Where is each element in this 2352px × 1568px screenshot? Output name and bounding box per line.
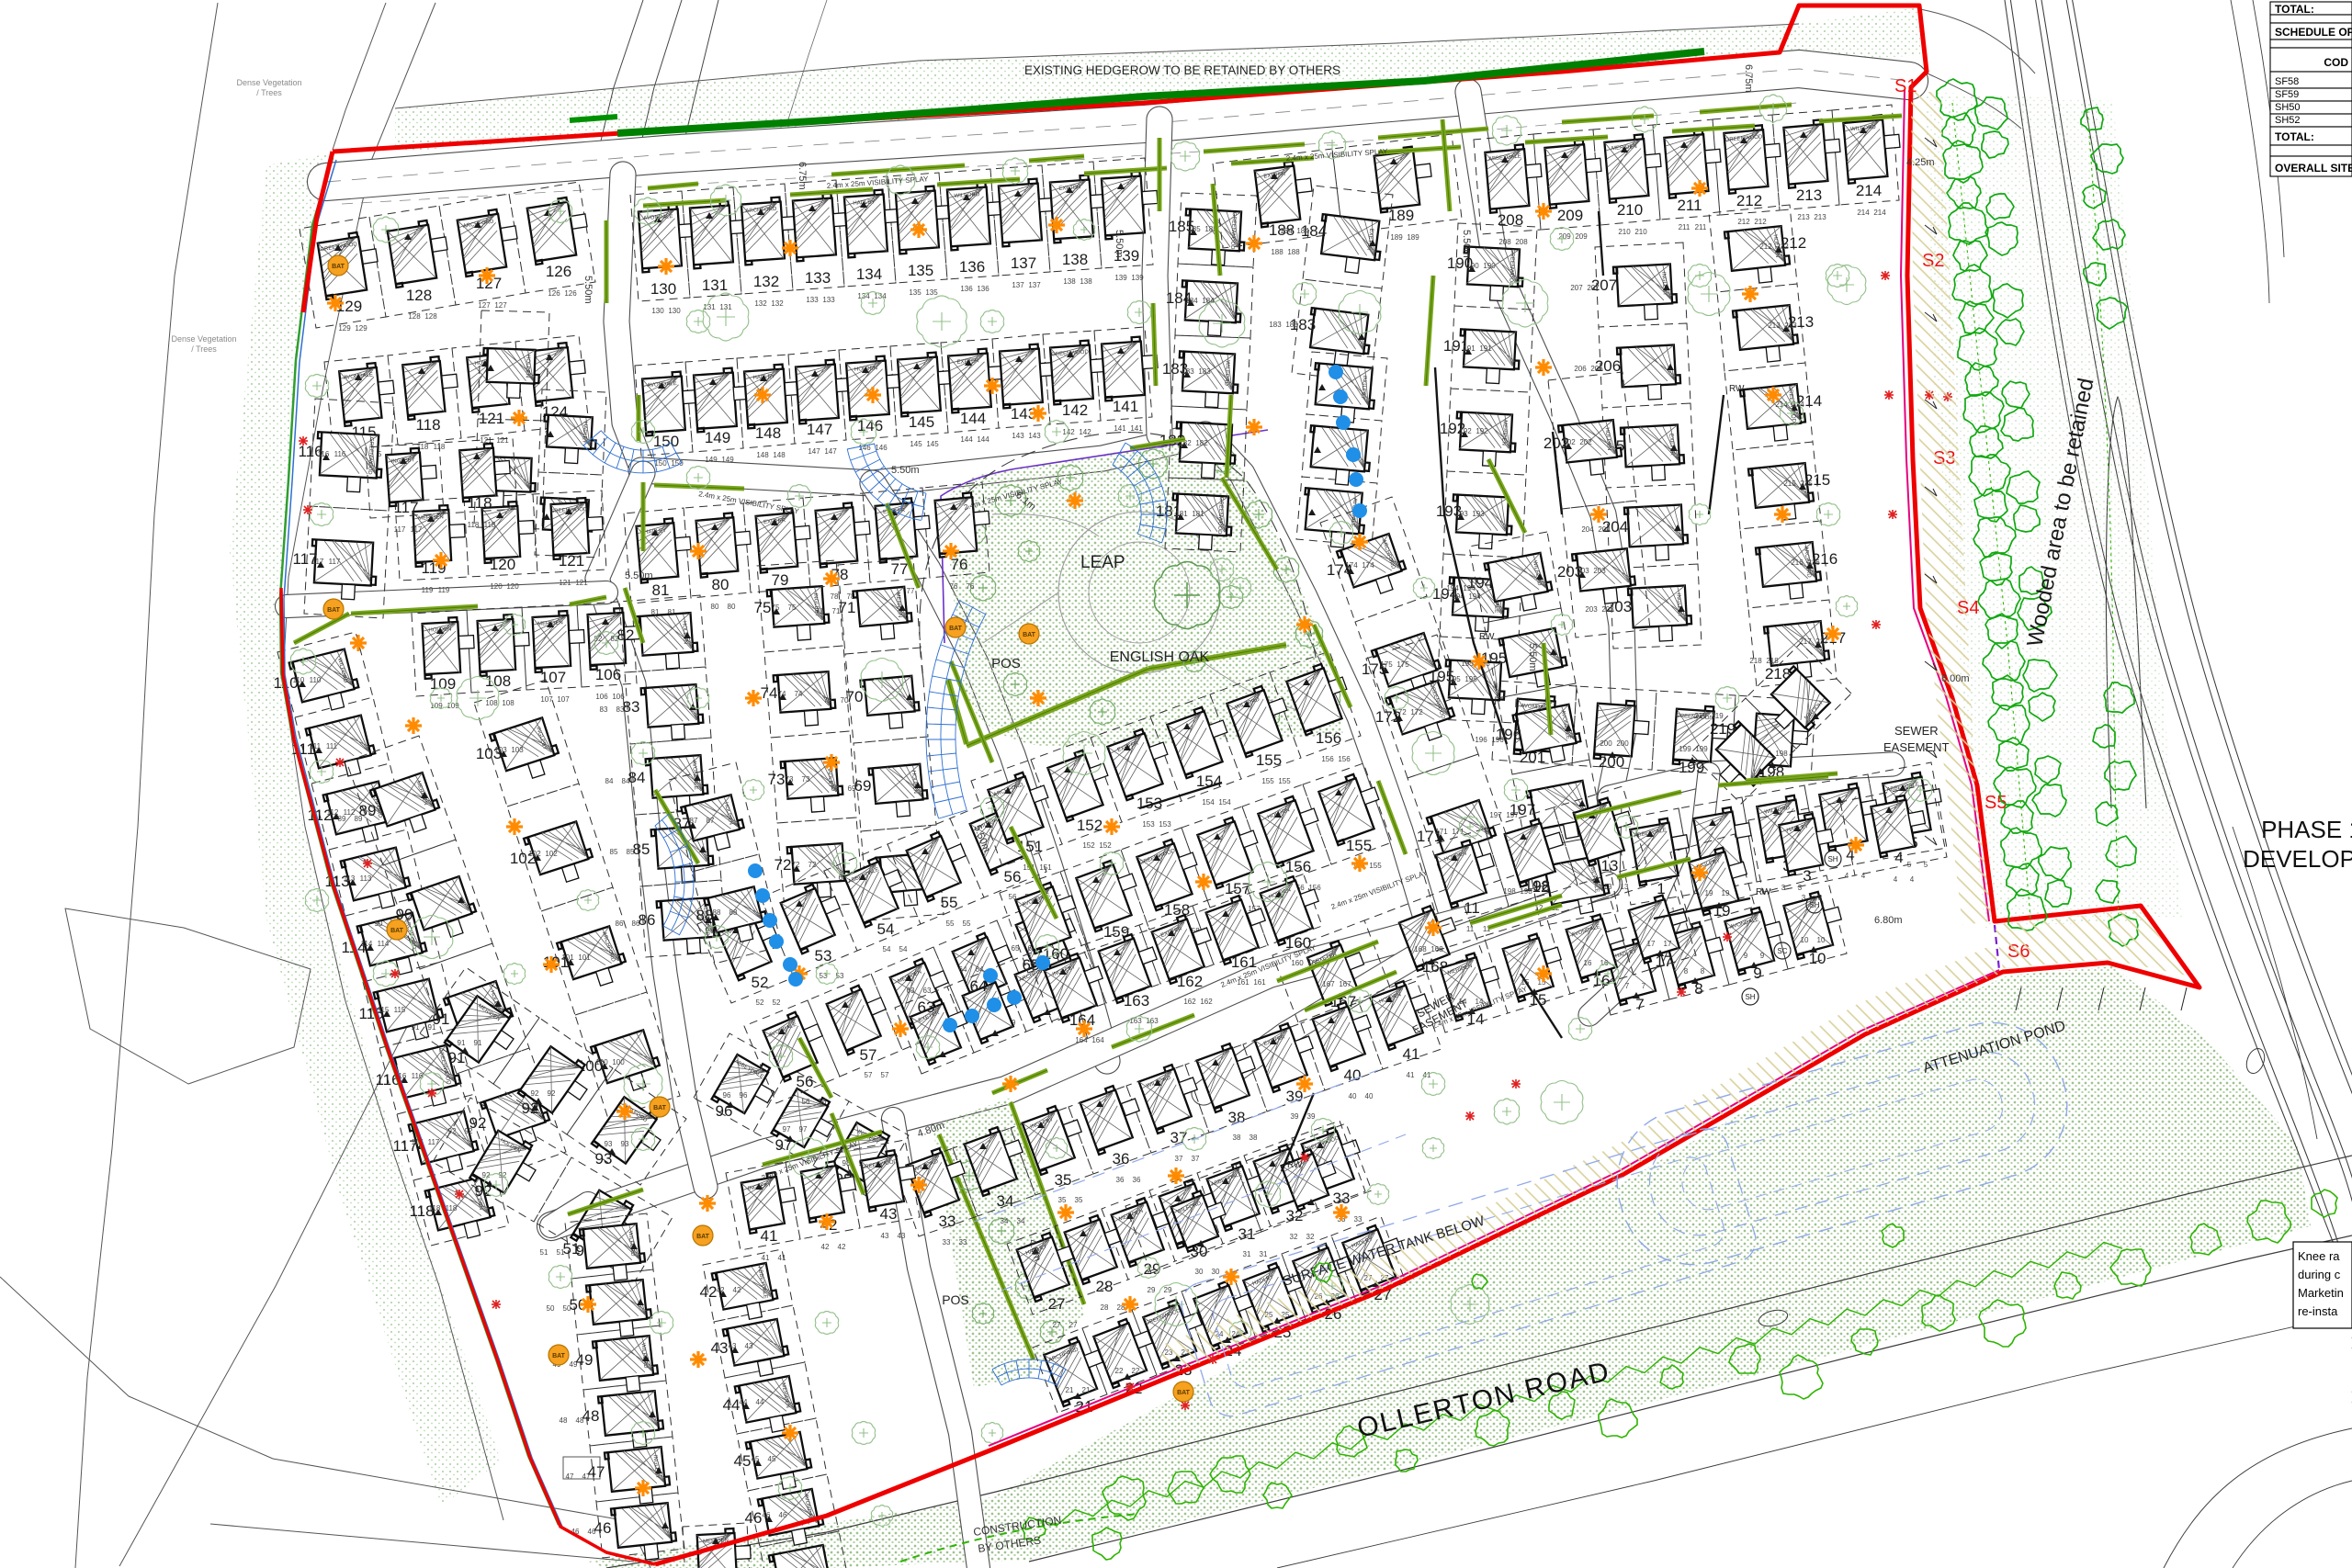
svg-text:183: 183: [1198, 367, 1211, 376]
svg-text:193: 193: [1455, 510, 1468, 518]
svg-text:46: 46: [745, 1509, 763, 1527]
svg-text:70: 70: [841, 696, 849, 705]
svg-text:40: 40: [1365, 1092, 1374, 1100]
svg-text:208: 208: [1498, 238, 1511, 246]
svg-text:203: 203: [1601, 605, 1614, 614]
svg-text:200: 200: [1599, 753, 1624, 771]
svg-text:75: 75: [788, 604, 797, 612]
svg-text:119: 119: [438, 586, 450, 594]
svg-text:5.50m: 5.50m: [1527, 643, 1538, 671]
svg-text:POS: POS: [942, 1292, 969, 1307]
svg-text:70: 70: [824, 696, 832, 705]
svg-text:SF59: SF59: [2275, 89, 2299, 100]
svg-text:171: 171: [1435, 828, 1448, 836]
svg-text:218: 218: [1765, 665, 1791, 682]
svg-text:40: 40: [1344, 1066, 1362, 1084]
svg-text:49: 49: [570, 1360, 578, 1369]
svg-text:54: 54: [899, 945, 908, 953]
svg-text:115: 115: [378, 1006, 390, 1014]
svg-text:41: 41: [778, 1254, 786, 1262]
svg-text:156: 156: [1316, 729, 1341, 747]
svg-text:64: 64: [959, 965, 967, 974]
svg-text:48: 48: [560, 1416, 568, 1425]
svg-text:DEVELOPME: DEVELOPME: [2243, 845, 2352, 873]
svg-text:212: 212: [1736, 192, 1762, 209]
svg-text:35: 35: [1075, 1196, 1083, 1204]
svg-text:31: 31: [1243, 1250, 1251, 1258]
svg-text:197: 197: [1506, 811, 1519, 819]
svg-text:57: 57: [865, 1071, 873, 1079]
svg-text:213: 213: [1768, 321, 1781, 330]
svg-text:145: 145: [910, 440, 922, 448]
svg-text:55: 55: [963, 919, 971, 928]
svg-text:7: 7: [1642, 982, 1646, 990]
svg-text:4: 4: [1894, 875, 1898, 884]
svg-text:56: 56: [797, 1073, 814, 1090]
svg-text:213: 213: [1796, 186, 1822, 204]
svg-text:103: 103: [511, 746, 524, 754]
svg-text:143: 143: [1028, 432, 1041, 440]
svg-text:51: 51: [557, 1248, 565, 1257]
svg-text:31: 31: [1238, 1225, 1256, 1243]
svg-text:107: 107: [557, 695, 570, 704]
svg-text:133: 133: [805, 269, 831, 287]
svg-text:203: 203: [1593, 567, 1606, 575]
svg-text:156: 156: [1321, 755, 1334, 763]
svg-text:82: 82: [617, 626, 635, 644]
svg-text:146: 146: [875, 444, 888, 452]
svg-text:117: 117: [329, 558, 341, 566]
svg-text:213: 213: [1784, 321, 1797, 330]
svg-text:212: 212: [1776, 243, 1789, 251]
svg-text:129: 129: [338, 324, 351, 333]
svg-text:215: 215: [1783, 479, 1796, 488]
svg-text:28: 28: [1096, 1278, 1114, 1295]
svg-text:5.50m: 5.50m: [891, 465, 920, 476]
svg-text:100: 100: [595, 1058, 608, 1066]
svg-text:204: 204: [1598, 525, 1611, 534]
svg-text:155: 155: [1261, 777, 1274, 785]
svg-text:128: 128: [408, 312, 421, 321]
svg-text:84: 84: [622, 777, 630, 785]
svg-text:48: 48: [576, 1416, 584, 1425]
svg-text:209: 209: [1575, 232, 1588, 241]
svg-text:41: 41: [1403, 1045, 1420, 1063]
svg-text:39: 39: [1307, 1112, 1316, 1121]
svg-text:72: 72: [792, 861, 800, 869]
svg-text:91: 91: [474, 1039, 482, 1047]
svg-text:203: 203: [1577, 567, 1589, 575]
svg-text:138: 138: [1080, 277, 1092, 286]
svg-text:214: 214: [1873, 209, 1886, 217]
svg-text:89: 89: [338, 815, 346, 823]
svg-text:91: 91: [428, 1023, 436, 1032]
svg-text:108: 108: [502, 699, 514, 707]
svg-text:SH: SH: [1745, 993, 1755, 1001]
svg-text:9: 9: [1744, 952, 1748, 960]
svg-text:BAT: BAT: [1023, 632, 1036, 638]
svg-text:130: 130: [651, 307, 664, 315]
svg-text:148: 148: [756, 451, 769, 459]
svg-text:12: 12: [1532, 878, 1550, 896]
svg-text:89: 89: [355, 815, 363, 823]
svg-text:217: 217: [1799, 637, 1812, 646]
svg-text:SH: SH: [1809, 901, 1819, 909]
svg-text:200: 200: [1600, 739, 1612, 748]
svg-text:57: 57: [881, 1071, 889, 1079]
svg-text:121: 121: [575, 579, 588, 587]
svg-text:81: 81: [652, 581, 670, 599]
svg-text:126: 126: [548, 289, 560, 298]
svg-text:120: 120: [490, 582, 503, 591]
svg-text:188: 188: [1287, 248, 1300, 256]
svg-text:55: 55: [941, 894, 958, 911]
svg-text:189: 189: [1407, 233, 1419, 242]
svg-text:34: 34: [1001, 1217, 1009, 1225]
svg-text:13: 13: [1604, 883, 1612, 891]
svg-text:83: 83: [600, 705, 608, 714]
svg-text:162: 162: [1177, 973, 1203, 990]
svg-text:54: 54: [877, 920, 895, 938]
svg-text:127: 127: [494, 301, 507, 310]
svg-text:85: 85: [627, 848, 635, 856]
svg-text:69: 69: [854, 777, 872, 795]
svg-text:21: 21: [1082, 1386, 1091, 1394]
svg-text:29: 29: [1148, 1286, 1156, 1294]
svg-text:76: 76: [950, 582, 958, 591]
svg-text:219: 219: [1694, 712, 1707, 720]
svg-text:135: 135: [925, 288, 938, 297]
svg-text:163: 163: [1146, 1017, 1159, 1025]
svg-text:214: 214: [1856, 182, 1882, 199]
svg-text:37: 37: [1175, 1155, 1183, 1163]
svg-text:50: 50: [547, 1304, 555, 1313]
svg-text:56: 56: [1004, 868, 1022, 886]
svg-text:194: 194: [1463, 584, 1476, 592]
svg-text:56: 56: [819, 1098, 827, 1106]
svg-text:147: 147: [807, 421, 832, 438]
svg-text:55: 55: [946, 919, 955, 928]
svg-text:Dense Vegetation: Dense Vegetation: [236, 78, 301, 87]
svg-text:63: 63: [907, 987, 915, 995]
svg-text:190: 190: [1483, 262, 1496, 270]
svg-text:75: 75: [772, 604, 780, 612]
svg-text:142: 142: [1062, 428, 1075, 436]
svg-text:92: 92: [522, 1100, 539, 1117]
svg-text:7: 7: [1625, 982, 1630, 990]
svg-text:83: 83: [623, 698, 640, 716]
svg-text:73: 73: [802, 775, 810, 784]
svg-text:91: 91: [448, 1049, 466, 1066]
svg-text:3: 3: [1802, 894, 1806, 902]
svg-text:38: 38: [1249, 1134, 1258, 1142]
svg-text:13: 13: [1621, 883, 1629, 891]
svg-text:SH: SH: [1827, 855, 1837, 863]
svg-text:135: 135: [908, 262, 933, 279]
svg-text:137: 137: [1028, 281, 1041, 289]
svg-text:196: 196: [1475, 736, 1487, 744]
svg-text:108: 108: [485, 672, 511, 690]
svg-text:69: 69: [831, 784, 840, 793]
svg-text:86: 86: [616, 919, 624, 928]
svg-text:44: 44: [740, 1398, 748, 1406]
svg-text:133: 133: [806, 296, 819, 304]
svg-text:43: 43: [880, 1205, 898, 1223]
svg-text:211: 211: [1679, 223, 1690, 231]
svg-text:181: 181: [1192, 510, 1204, 518]
svg-text:212: 212: [1754, 218, 1767, 226]
svg-text:43: 43: [745, 1342, 753, 1350]
svg-text:79: 79: [772, 571, 789, 589]
svg-text:96: 96: [716, 1102, 733, 1120]
svg-text:195: 195: [1464, 675, 1477, 683]
svg-text:118: 118: [429, 1204, 441, 1213]
svg-text:141: 141: [1130, 424, 1143, 433]
svg-text:117: 117: [393, 499, 418, 516]
svg-text:161: 161: [1253, 978, 1266, 987]
svg-text:43: 43: [729, 1342, 737, 1350]
svg-text:207: 207: [1570, 284, 1583, 292]
svg-text:86: 86: [639, 911, 656, 929]
svg-text:135: 135: [909, 288, 922, 297]
svg-text:164: 164: [1075, 1036, 1088, 1044]
svg-text:172: 172: [1410, 708, 1423, 716]
svg-text:73: 73: [786, 775, 794, 784]
svg-text:74: 74: [778, 690, 786, 698]
svg-text:SC: SC: [1777, 947, 1787, 955]
svg-text:22: 22: [1132, 1367, 1140, 1375]
svg-text:189: 189: [1390, 233, 1403, 242]
svg-text:202: 202: [1579, 438, 1592, 446]
svg-text:BAT: BAT: [653, 1105, 667, 1111]
svg-text:115: 115: [394, 1006, 406, 1014]
svg-text:117: 117: [312, 558, 324, 566]
svg-text:133: 133: [822, 296, 835, 304]
svg-text:52: 52: [756, 998, 764, 1007]
svg-text:189: 189: [1388, 207, 1414, 224]
svg-text:52: 52: [773, 998, 781, 1007]
svg-text:31: 31: [1260, 1250, 1268, 1258]
svg-text:163: 163: [1124, 992, 1149, 1010]
svg-text:185: 185: [1188, 225, 1201, 233]
svg-text:134: 134: [856, 265, 882, 283]
svg-text:214: 214: [1792, 400, 1804, 409]
svg-text:71: 71: [839, 599, 856, 616]
svg-text:92: 92: [475, 1182, 492, 1200]
svg-text:141: 141: [1114, 424, 1126, 433]
svg-text:45: 45: [752, 1455, 760, 1463]
svg-text:192: 192: [1476, 427, 1488, 435]
svg-text:154: 154: [1202, 798, 1215, 807]
svg-text:SH50: SH50: [2275, 102, 2301, 113]
svg-text:113: 113: [344, 874, 356, 883]
svg-text:36: 36: [1133, 1176, 1141, 1184]
svg-text:121: 121: [559, 552, 584, 570]
svg-text:28: 28: [1101, 1303, 1109, 1312]
svg-text:144: 144: [977, 435, 989, 444]
svg-text:213: 213: [1814, 213, 1826, 221]
svg-text:129: 129: [355, 324, 367, 333]
svg-text:EASEMENT: EASEMENT: [1883, 740, 1950, 754]
svg-text:/ Trees: / Trees: [191, 344, 217, 354]
svg-text:155: 155: [1256, 751, 1282, 769]
svg-text:80: 80: [712, 576, 729, 593]
svg-text:88: 88: [696, 907, 714, 924]
svg-text:BAT: BAT: [390, 928, 404, 934]
svg-text:156: 156: [1338, 755, 1351, 763]
svg-text:96: 96: [740, 1091, 748, 1100]
svg-text:71: 71: [832, 607, 841, 615]
svg-text:SH52: SH52: [2275, 115, 2301, 126]
svg-text:40: 40: [1349, 1092, 1357, 1100]
svg-text:22: 22: [1115, 1367, 1124, 1375]
svg-text:re-insta: re-insta: [2298, 1304, 2338, 1318]
svg-text:128: 128: [424, 312, 437, 321]
svg-text:188: 188: [1271, 248, 1283, 256]
svg-text:BAT: BAT: [949, 626, 963, 632]
svg-text:198: 198: [1775, 750, 1788, 758]
svg-text:219: 219: [1711, 712, 1724, 720]
svg-text:117: 117: [411, 525, 423, 534]
svg-text:ENGLISH OAK: ENGLISH OAK: [1110, 649, 1210, 665]
svg-text:208: 208: [1515, 238, 1528, 246]
svg-text:137: 137: [1011, 254, 1036, 272]
svg-text:3: 3: [1798, 884, 1803, 892]
svg-text:42: 42: [717, 1286, 725, 1294]
svg-text:152: 152: [1077, 817, 1102, 834]
svg-text:30: 30: [1195, 1268, 1204, 1276]
svg-text:COD: COD: [2324, 56, 2348, 69]
svg-text:218: 218: [1766, 657, 1779, 665]
svg-text:217: 217: [1815, 637, 1828, 646]
svg-text:144: 144: [960, 410, 986, 427]
svg-text:84: 84: [628, 769, 646, 786]
svg-text:27: 27: [1048, 1295, 1066, 1313]
svg-text:73: 73: [768, 771, 786, 788]
svg-text:46: 46: [594, 1519, 612, 1537]
svg-text:211: 211: [1695, 223, 1707, 231]
svg-text:4: 4: [1845, 872, 1849, 880]
svg-text:Knee ra: Knee ra: [2298, 1249, 2340, 1263]
svg-text:138: 138: [1063, 277, 1076, 286]
svg-text:6.75m: 6.75m: [1743, 64, 1754, 93]
svg-text:143: 143: [1012, 432, 1024, 440]
svg-text:183: 183: [1285, 321, 1298, 329]
svg-text:132: 132: [754, 299, 767, 308]
svg-text:8: 8: [1684, 967, 1689, 976]
svg-text:204: 204: [1581, 525, 1594, 534]
svg-text:118: 118: [467, 494, 492, 512]
svg-text:7: 7: [1635, 996, 1644, 1013]
svg-text:116: 116: [334, 450, 346, 458]
svg-text:107: 107: [540, 669, 566, 686]
svg-text:BAT: BAT: [696, 1234, 710, 1240]
svg-text:136: 136: [960, 285, 973, 293]
svg-text:145: 145: [926, 440, 939, 448]
svg-text:32: 32: [1290, 1233, 1298, 1241]
svg-text:96: 96: [723, 1091, 731, 1100]
svg-text:212: 212: [1737, 218, 1750, 226]
svg-text:101: 101: [561, 953, 574, 962]
svg-text:POS: POS: [991, 656, 1021, 671]
svg-text:91: 91: [458, 1039, 466, 1047]
svg-text:11: 11: [1466, 925, 1475, 933]
svg-text:148: 148: [755, 424, 781, 442]
svg-text:207: 207: [1587, 284, 1600, 292]
svg-text:17: 17: [1656, 953, 1673, 970]
svg-text:121: 121: [559, 579, 571, 587]
svg-text:174: 174: [1345, 561, 1358, 570]
svg-text:10: 10: [1801, 936, 1809, 944]
svg-text:50: 50: [563, 1304, 571, 1313]
svg-text:97: 97: [783, 1125, 791, 1134]
svg-text:215: 215: [1800, 479, 1813, 488]
svg-text:102: 102: [545, 850, 558, 858]
svg-text:6.75m: 6.75m: [797, 162, 808, 190]
svg-text:216: 216: [1807, 558, 1820, 567]
svg-text:52: 52: [752, 974, 769, 991]
svg-text:219: 219: [1710, 720, 1736, 738]
svg-text:111: 111: [326, 742, 338, 750]
svg-text:184: 184: [1280, 227, 1293, 235]
svg-text:Dense Vegetation: Dense Vegetation: [171, 334, 236, 344]
svg-text:5.50m: 5.50m: [625, 570, 653, 581]
svg-text:106: 106: [595, 693, 608, 701]
svg-text:136: 136: [977, 285, 989, 293]
svg-text:155: 155: [1346, 837, 1372, 854]
svg-text:209: 209: [1557, 207, 1583, 224]
svg-text:92: 92: [548, 1089, 556, 1098]
svg-text:116: 116: [318, 450, 330, 458]
svg-text:51: 51: [563, 1240, 581, 1258]
svg-text:72: 72: [775, 856, 792, 874]
svg-text:RW: RW: [1756, 887, 1771, 897]
svg-text:77: 77: [891, 560, 909, 578]
svg-text:35: 35: [1055, 1171, 1072, 1189]
svg-text:37: 37: [1192, 1155, 1200, 1163]
svg-text:6.00m: 6.00m: [1941, 673, 1970, 684]
svg-text:/ Trees: / Trees: [256, 88, 282, 97]
svg-text:155: 155: [1369, 862, 1382, 870]
svg-text:63: 63: [923, 987, 932, 995]
svg-text:41: 41: [1407, 1071, 1415, 1079]
svg-text:162: 162: [1183, 998, 1196, 1006]
svg-text:183: 183: [1182, 367, 1194, 376]
svg-text:93: 93: [621, 1140, 629, 1148]
svg-text:42: 42: [821, 1243, 830, 1251]
svg-text:33: 33: [943, 1238, 951, 1247]
svg-text:101: 101: [578, 953, 591, 962]
svg-text:167: 167: [1322, 980, 1335, 988]
svg-text:38: 38: [1233, 1134, 1241, 1142]
svg-text:210: 210: [1617, 201, 1643, 219]
svg-text:92: 92: [531, 1089, 539, 1098]
svg-text:194: 194: [1446, 584, 1459, 592]
svg-text:33: 33: [959, 1238, 967, 1247]
svg-text:114: 114: [378, 940, 390, 948]
svg-text:132: 132: [771, 299, 784, 308]
svg-text:72: 72: [808, 861, 817, 869]
svg-text:191: 191: [1463, 344, 1476, 353]
svg-text:TOTAL:: TOTAL:: [2275, 130, 2314, 143]
svg-text:76: 76: [967, 582, 975, 591]
svg-text:34: 34: [997, 1192, 1014, 1210]
svg-text:153: 153: [1142, 820, 1155, 829]
svg-text:RW: RW: [1479, 632, 1495, 642]
svg-text:43: 43: [711, 1339, 729, 1357]
svg-text:130: 130: [668, 307, 681, 315]
svg-text:175: 175: [1396, 660, 1409, 669]
